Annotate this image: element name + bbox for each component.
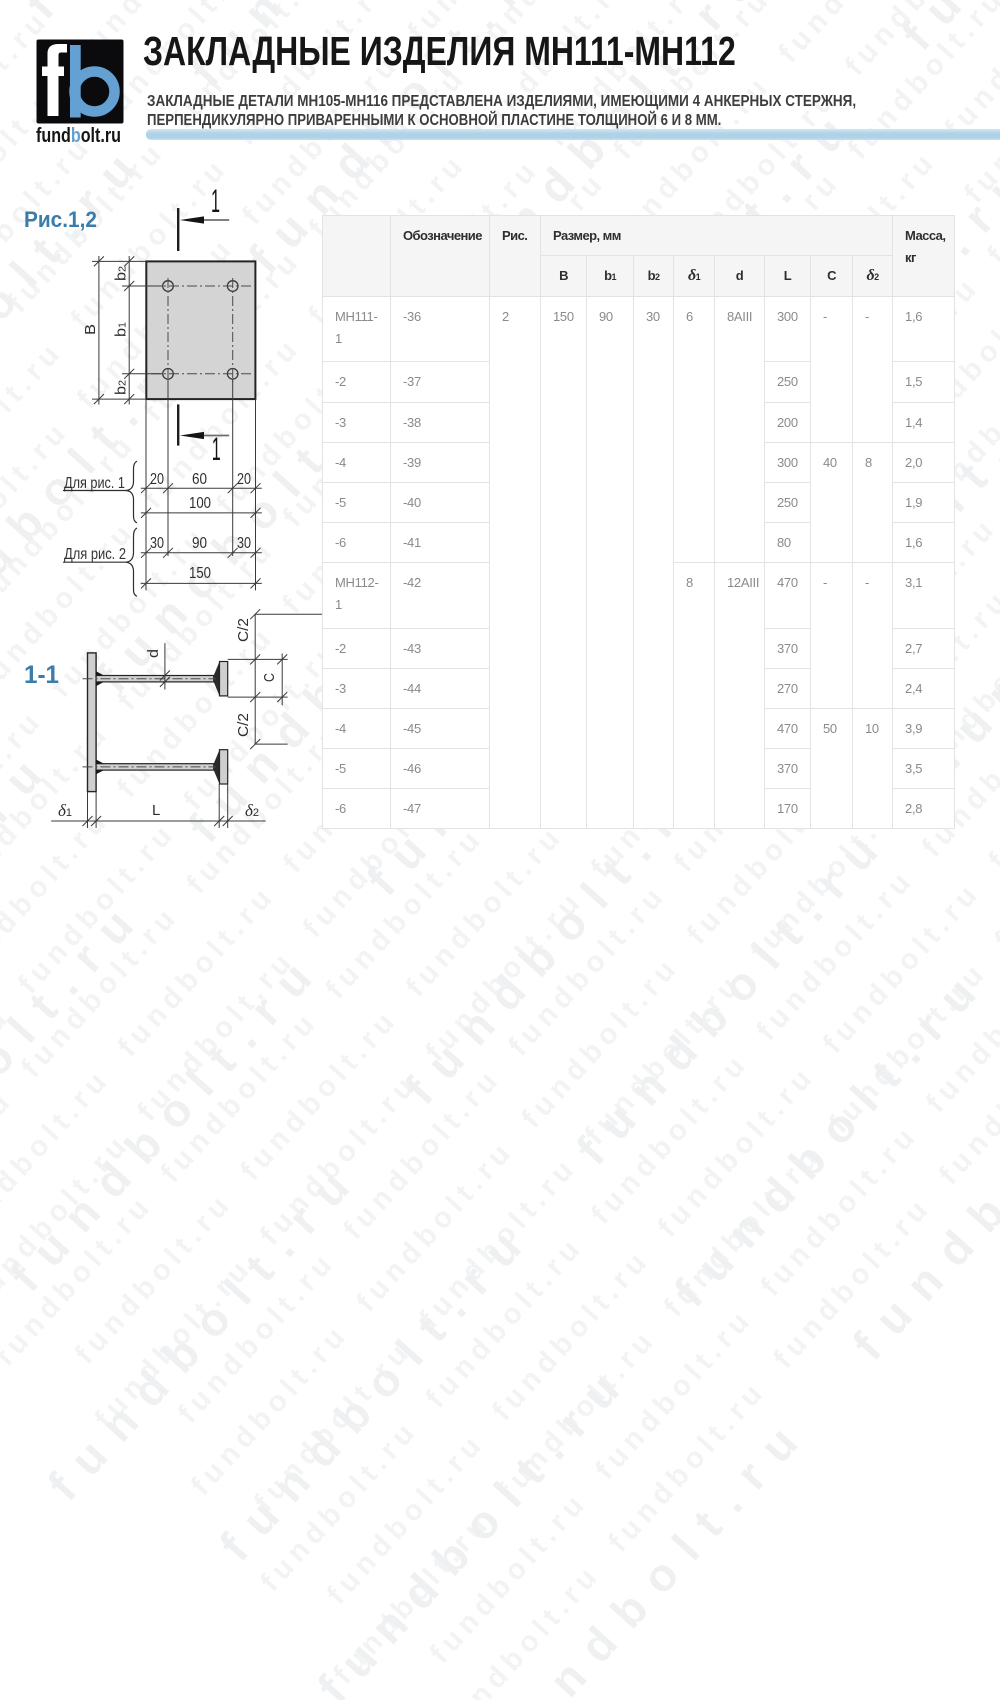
svg-text:Для рис. 2: Для рис. 2 [64,546,126,563]
svg-text:C: C [261,673,278,682]
svg-text:Рис.1,2: Рис.1,2 [24,207,97,232]
svg-text:60: 60 [192,471,207,488]
svg-text:L: L [152,802,160,819]
svg-text:30: 30 [150,535,164,552]
svg-text:1: 1 [211,183,220,219]
svg-text:Для рис. 1: Для рис. 1 [64,475,125,492]
svg-text:b1: b1 [113,322,130,337]
svg-text:20: 20 [237,471,251,488]
svg-text:δ2: δ2 [245,801,259,820]
svg-text:150: 150 [189,565,211,582]
svg-text:b2: b2 [113,266,130,281]
svg-text:b2: b2 [113,380,130,395]
svg-text:1-1: 1-1 [24,661,59,689]
svg-text:20: 20 [150,471,164,488]
svg-text:B: B [82,324,99,335]
svg-text:30: 30 [237,535,251,552]
svg-text:d: d [145,649,162,658]
svg-text:100: 100 [189,495,211,512]
svg-text:δ1: δ1 [58,801,72,820]
svg-text:C/2: C/2 [235,618,252,642]
svg-text:90: 90 [192,535,207,552]
svg-text:1: 1 [212,431,221,467]
svg-text:C/2: C/2 [235,713,252,737]
